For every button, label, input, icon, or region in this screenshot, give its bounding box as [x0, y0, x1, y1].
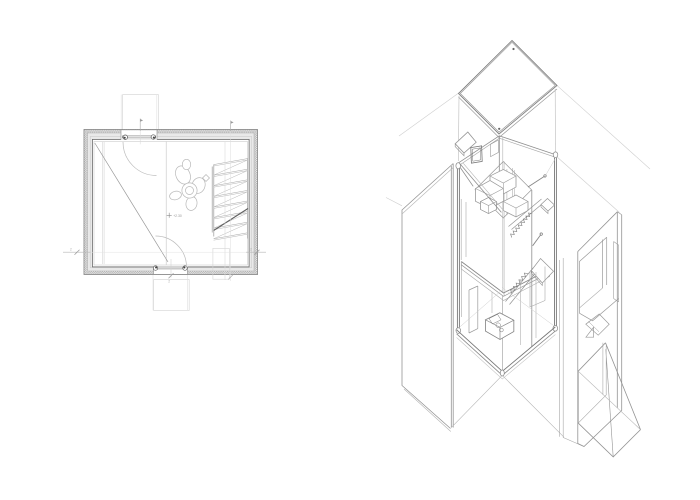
svg-text:2: 2	[70, 248, 72, 252]
svg-text:2: 2	[250, 248, 252, 252]
svg-text:+2.30: +2.30	[173, 214, 182, 218]
svg-text:2: 2	[168, 280, 170, 284]
